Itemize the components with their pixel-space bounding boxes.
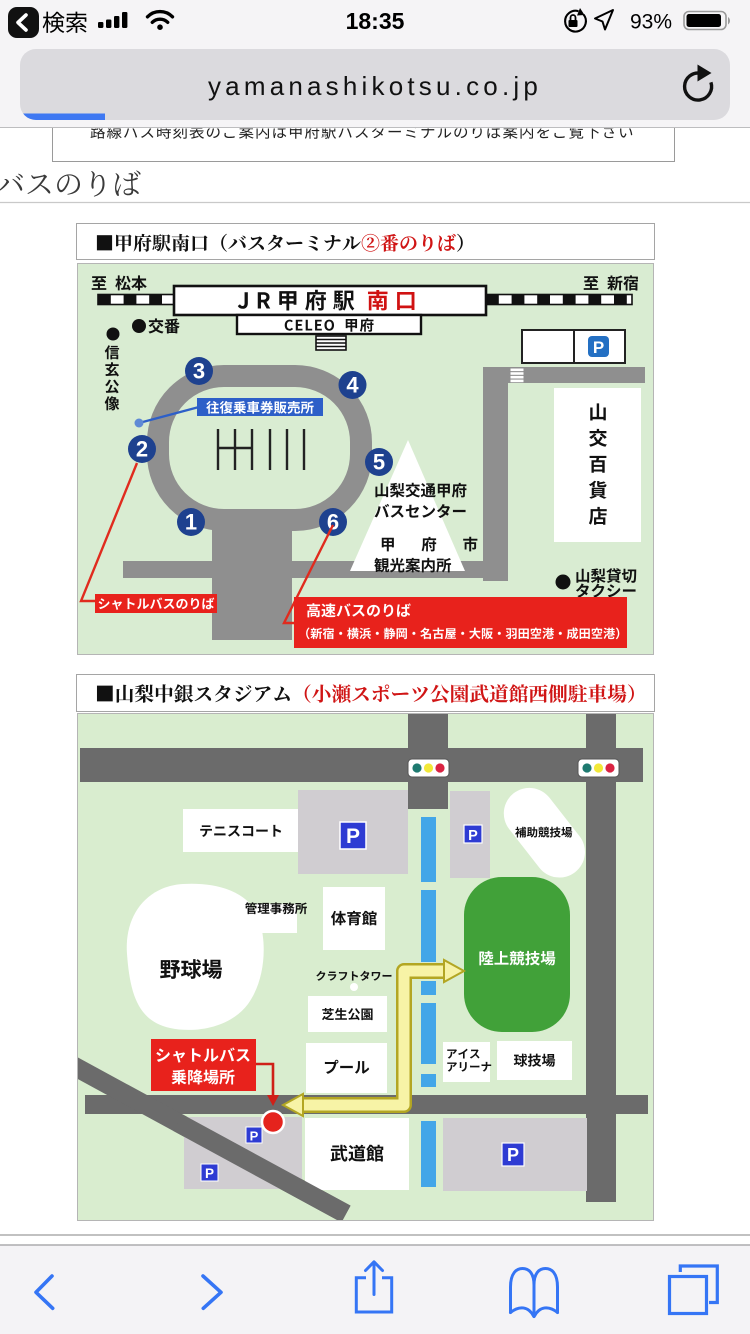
svg-text:P: P <box>346 825 360 848</box>
svg-text:P: P <box>205 1166 214 1181</box>
svg-text:93%: 93% <box>630 11 672 34</box>
svg-text:1: 1 <box>185 510 197 535</box>
svg-text:P: P <box>250 1129 259 1144</box>
svg-text:P: P <box>507 1145 519 1165</box>
svg-text:2: 2 <box>136 437 148 462</box>
svg-text:6: 6 <box>327 510 339 535</box>
svg-text:18:35: 18:35 <box>346 8 405 34</box>
svg-text:4: 4 <box>346 373 359 398</box>
svg-text:P: P <box>468 828 478 844</box>
svg-text:3: 3 <box>193 359 205 384</box>
svg-text:P: P <box>593 338 604 357</box>
svg-text:5: 5 <box>373 450 385 475</box>
svg-text:yamanashikotsu.co.jp: yamanashikotsu.co.jp <box>208 71 542 101</box>
